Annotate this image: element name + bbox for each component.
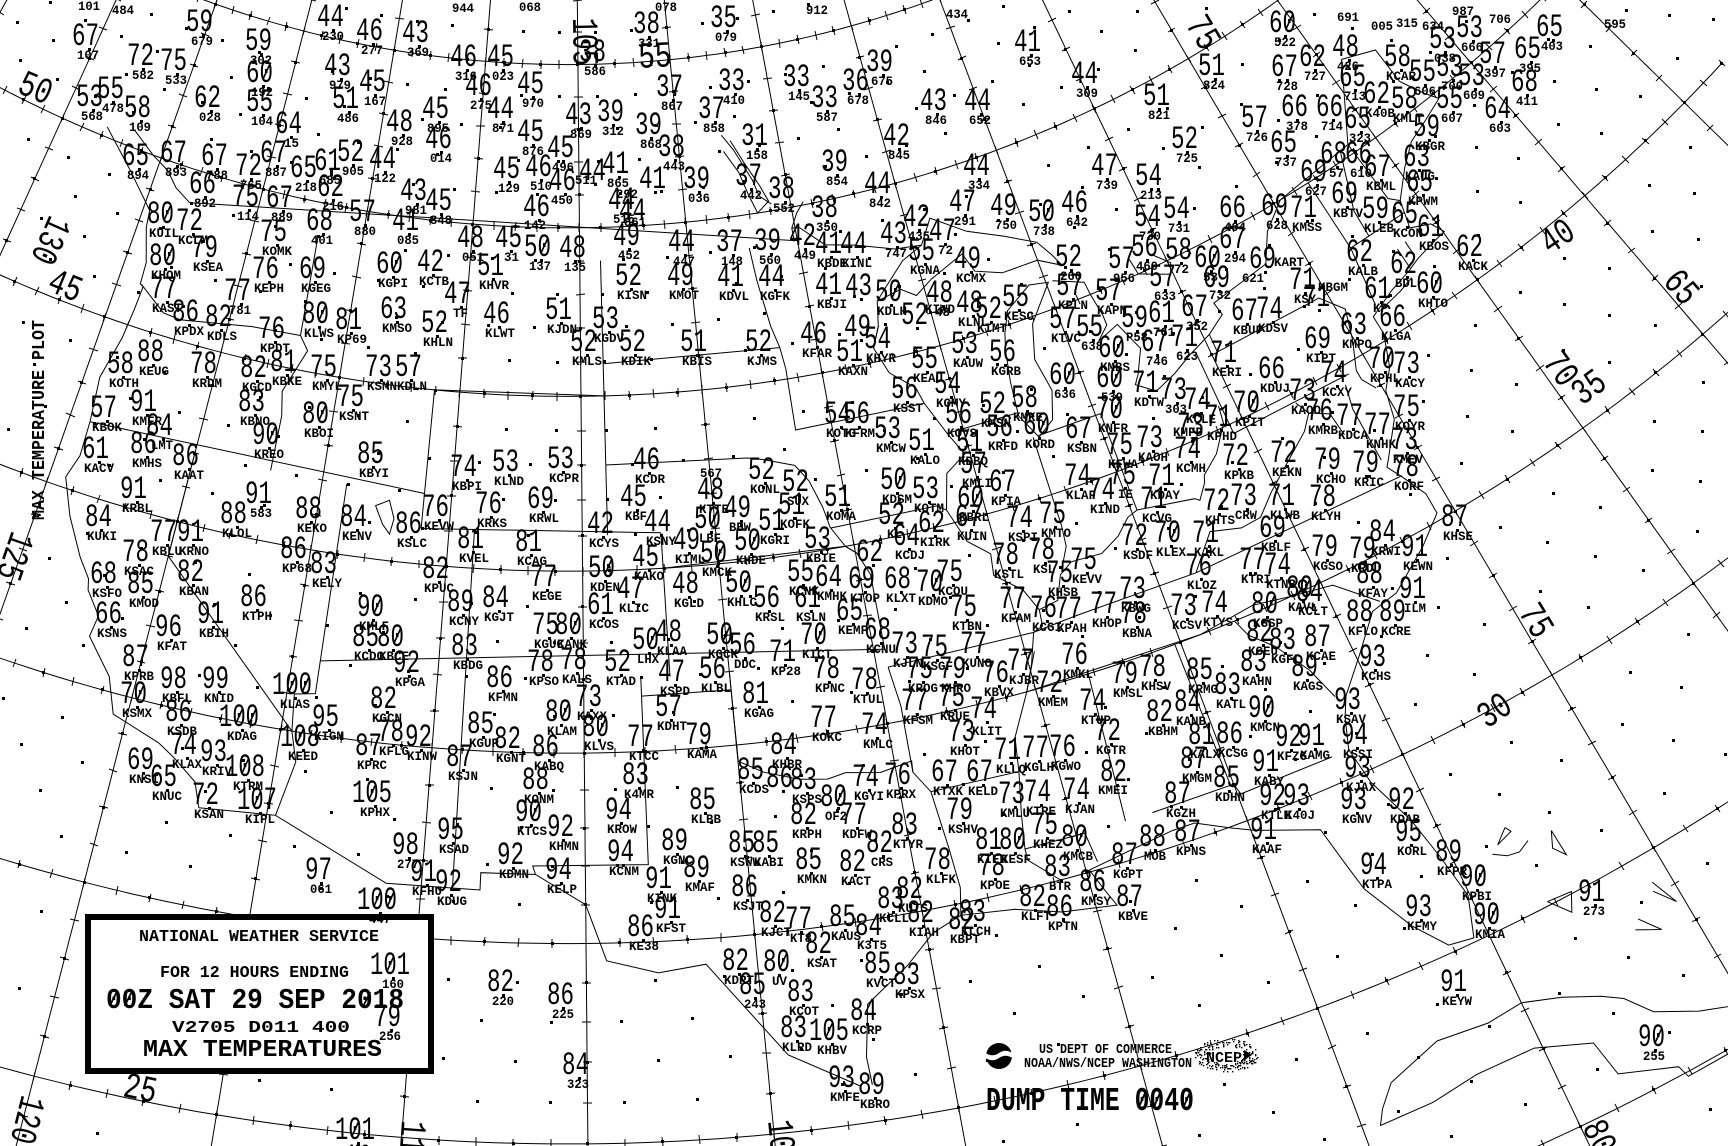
svg-text:114: 114 [237,210,259,224]
svg-text:KHVR: KHVR [479,279,509,293]
svg-text:KHTO: KHTO [1418,297,1448,311]
svg-text:595: 595 [1604,18,1626,32]
svg-text:781: 781 [229,304,251,318]
svg-text:434: 434 [946,8,968,22]
svg-text:KPTN: KPTN [1048,920,1078,934]
svg-text:MAX TEMPERATURES: MAX TEMPERATURES [143,1037,382,1064]
svg-text:478: 478 [102,102,124,116]
svg-text:KBOS: KBOS [1419,240,1449,254]
svg-text:KRDM: KRDM [192,377,222,391]
svg-text:IE: IE [1118,488,1133,502]
svg-text:005: 005 [1371,20,1393,34]
svg-text:586: 586 [584,65,606,79]
svg-text:KPAH: KPAH [1057,622,1087,636]
svg-text:KMEM: KMEM [1038,696,1068,710]
svg-text:KESF: KESF [1001,853,1031,867]
svg-text:449: 449 [794,249,816,263]
svg-text:KTRE: KTRE [1026,805,1056,819]
svg-text:KOKC: KOKC [812,731,842,745]
svg-text:KMLC: KMLC [863,738,893,752]
svg-text:628: 628 [1266,219,1288,233]
svg-text:634: 634 [1422,20,1444,34]
svg-text:KVEL: KVEL [459,552,489,566]
svg-text:315: 315 [1396,17,1418,31]
svg-text:00Z SAT 29 SEP 2018: 00Z SAT 29 SEP 2018 [106,984,404,1017]
svg-text:079: 079 [715,31,737,45]
svg-text:KMFD: KMFD [1173,426,1203,440]
svg-text:KFAT: KFAT [157,640,187,654]
svg-text:KRPH: KRPH [792,828,822,842]
svg-text:KBIS: KBIS [682,355,712,369]
svg-text:KCRE: KCRE [1381,625,1411,639]
svg-text:K40J: K40J [1285,809,1315,823]
svg-text:036: 036 [688,192,710,206]
svg-text:230: 230 [322,30,344,44]
svg-text:880: 880 [354,225,376,239]
svg-text:867: 867 [661,100,683,114]
svg-text:NATIONAL WEATHER SERVICE: NATIONAL WEATHER SERVICE [139,928,379,947]
svg-text:014: 014 [430,152,452,166]
svg-text:893: 893 [165,166,187,180]
svg-text:KBTV: KBTV [1333,207,1363,221]
svg-text:NCEP: NCEP [1206,1050,1242,1067]
svg-text:KHBV: KHBV [817,1044,847,1058]
svg-text:627: 627 [1305,185,1327,199]
svg-text:KMSL: KMSL [1113,687,1143,701]
svg-text:292: 292 [616,188,638,202]
svg-text:KSDF: KSDF [1123,549,1153,563]
svg-text:KPSO: KPSO [529,675,559,689]
svg-text:KVCT: KVCT [866,977,896,991]
svg-text:KORF: KORF [1394,480,1424,494]
svg-text:KAGS: KAGS [1293,680,1323,694]
svg-text:KISN: KISN [617,289,647,303]
svg-text:KEUG: KEUG [139,365,169,379]
svg-text:KIPL: KIPL [245,813,275,827]
svg-text:511: 511 [575,174,597,188]
svg-text:KGRI: KGRI [760,534,790,548]
svg-text:256: 256 [379,1030,401,1044]
svg-text:KEGE: KEGE [532,590,562,604]
svg-text:KFRM: KFRM [845,427,875,441]
svg-text:727: 727 [1304,70,1326,84]
svg-text:KGRB: KGRB [991,365,1021,379]
svg-text:KGPI: KGPI [378,277,408,291]
svg-text:62: 62 [856,534,883,571]
svg-text:KLWT: KLWT [485,327,515,341]
svg-text:738: 738 [1033,225,1055,239]
svg-text:KLXT: KLXT [886,592,916,606]
svg-text:KAAT: KAAT [174,469,204,483]
svg-text:KHSE: KHSE [1443,530,1473,544]
svg-text:KMSY: KMSY [1081,895,1111,909]
svg-text:KPHX: KPHX [360,806,390,820]
svg-text:KGZH: KGZH [1166,807,1196,821]
svg-text:KORL: KORL [1397,845,1427,859]
svg-text:31: 31 [504,251,519,265]
svg-text:078: 078 [655,1,677,15]
svg-text:894: 894 [127,169,149,183]
svg-text:KLYH: KLYH [1311,510,1341,524]
svg-text:BDL: BDL [1395,277,1417,291]
svg-text:KSJN: KSJN [448,770,478,784]
svg-text:KMKL: KMKL [1063,668,1093,682]
svg-text:KFLO: KFLO [1348,625,1378,639]
svg-text:KLCH: KLCH [961,925,991,939]
svg-text:KBDG: KBDG [453,659,483,673]
svg-text:KATL: KATL [1216,698,1246,712]
svg-text:KLEX: KLEX [1156,546,1186,560]
svg-text:KELY: KELY [312,577,342,591]
svg-text:KLBL: KLBL [701,682,731,696]
svg-text:568: 568 [81,110,103,124]
svg-text:KCSV: KCSV [1172,619,1202,633]
svg-text:603: 603 [1489,122,1511,136]
svg-text:652: 652 [969,114,991,128]
svg-text:137: 137 [529,260,551,274]
svg-text:KEWN: KEWN [1403,560,1433,574]
svg-text:714: 714 [1321,120,1343,134]
svg-text:KGLD: KGLD [674,597,704,611]
svg-text:KELP: KELP [547,883,577,897]
svg-text:KACK: KACK [1458,260,1488,274]
svg-text:72: 72 [1174,263,1189,277]
svg-text:ILM: ILM [1404,602,1426,616]
svg-text:110: 110 [387,1119,432,1146]
svg-text:CRS: CRS [871,856,893,870]
svg-text:609: 609 [1463,89,1485,103]
svg-text:DUMP TIME 0040: DUMP TIME 0040 [986,1083,1194,1120]
svg-text:220: 220 [492,995,514,1009]
svg-text:KP28: KP28 [771,665,801,679]
svg-text:824: 824 [1203,79,1225,93]
svg-text:KPNS: KPNS [1176,845,1206,859]
svg-text:KGWO: KGWO [1051,760,1081,774]
svg-text:731: 731 [1168,222,1190,236]
svg-text:871: 871 [492,122,514,136]
svg-text:KEVW: KEVW [424,520,454,534]
svg-text:KLBB: KLBB [691,813,721,827]
svg-text:KDAG: KDAG [227,730,257,744]
svg-text:KBYI: KBYI [359,467,389,481]
svg-text:KART: KART [1274,256,1304,270]
svg-text:KOMA: KOMA [826,510,856,524]
svg-text:KSNT: KSNT [339,410,369,424]
svg-text:KEED: KEED [288,750,318,764]
svg-text:KSHV: KSHV [948,823,978,837]
svg-text:636: 636 [1054,388,1076,402]
svg-text:KCNM: KCNM [609,865,639,879]
svg-text:KBNA: KBNA [1122,627,1152,641]
svg-text:KHSV: KHSV [1141,680,1171,694]
svg-text:KEVV: KEVV [1072,573,1102,587]
svg-text:679: 679 [191,35,213,49]
svg-text:401: 401 [311,234,333,248]
svg-text:061: 061 [310,883,332,897]
svg-text:KDMN: KDMN [499,868,529,882]
svg-text:KGAG: KGAG [744,707,774,721]
svg-text:KLWS: KLWS [304,327,334,341]
svg-text:KMOT: KMOT [669,289,699,303]
svg-text:KMSO: KMSO [382,322,412,336]
svg-text:KTUL: KTUL [853,693,883,707]
svg-text:KJMS: KJMS [747,355,777,369]
svg-text:KMKN: KMKN [797,873,827,887]
svg-text:KHTS: KHTS [1205,514,1235,528]
svg-text:854: 854 [826,175,848,189]
svg-text:KPRC: KPRC [357,759,387,773]
svg-text:KHLN: KHLN [423,336,453,350]
svg-text:100: 100 [756,1118,803,1146]
svg-text:KUIN: KUIN [957,530,987,544]
svg-text:KCDS: KCDS [739,783,769,797]
svg-text:621: 621 [1242,272,1264,286]
svg-text:KBGM: KBGM [1318,281,1348,295]
svg-text:486: 486 [337,112,359,126]
svg-text:KDHT: KDHT [657,720,687,734]
svg-text:KLRD: KLRD [782,1041,812,1055]
svg-text:KSBN: KSBN [1067,442,1097,456]
svg-text:NOAA/NWS/NCEP WASHINGTON: NOAA/NWS/NCEP WASHINGTON [1024,1057,1192,1072]
svg-text:706: 706 [1489,13,1511,27]
svg-text:KBWG: KBWG [1121,602,1151,616]
svg-text:KICT: KICT [802,648,832,662]
svg-text:KCLL: KCLL [879,912,909,926]
svg-text:068: 068 [519,1,541,15]
svg-text:167: 167 [364,95,386,109]
svg-text:KPRX: KPRX [886,788,916,802]
svg-text:KBF: KBF [625,510,647,524]
svg-text:KCDR: KCDR [635,473,665,487]
svg-text:905: 905 [342,165,364,179]
svg-text:583: 583 [250,507,272,521]
svg-text:US DEPT OF COMMERCE: US DEPT OF COMMERCE [1039,1043,1172,1058]
svg-text:845: 845 [888,149,910,163]
svg-text:KPIT: KPIT [1235,416,1265,430]
svg-text:944: 944 [452,2,474,16]
svg-text:KMEI: KMEI [1098,784,1128,798]
svg-text:KLVS: KLVS [584,740,614,754]
svg-text:726: 726 [1246,131,1268,145]
svg-text:243: 243 [744,998,766,1012]
svg-text:KFMN: KFMN [488,691,518,705]
svg-text:KTYS: KTYS [1203,616,1233,630]
svg-text:KPOE: KPOE [980,879,1010,893]
svg-text:K4MR: K4MR [624,788,654,802]
svg-text:KSMN: KSMN [367,380,397,394]
svg-text:KRIC: KRIC [1354,476,1384,490]
svg-text:107: 107 [77,49,99,63]
svg-text:KFAY: KFAY [1358,587,1388,601]
svg-text:750: 750 [995,219,1017,233]
svg-text:484: 484 [112,4,134,18]
svg-text:848: 848 [430,214,452,228]
svg-text:435: 435 [908,230,930,244]
svg-text:642: 642 [1066,216,1088,230]
svg-text:KCMX: KCMX [956,272,986,286]
svg-text:KAMG: KAMG [1300,749,1330,763]
svg-text:KMSS: KMSS [1292,221,1322,235]
svg-text:410: 410 [723,94,745,108]
svg-text:277: 277 [361,44,383,58]
svg-text:KIND: KIND [1090,503,1120,517]
svg-text:KCSG: KCSG [1218,747,1248,761]
svg-text:DDC: DDC [734,658,756,672]
svg-text:KGYI: KGYI [854,790,884,804]
svg-text:KGNV: KGNV [1342,813,1372,827]
svg-text:623: 623 [1176,350,1198,364]
svg-text:KDUJ: KDUJ [1260,382,1290,396]
svg-text:567: 567 [700,467,722,481]
svg-text:KNUC: KNUC [152,790,182,804]
svg-text:KFSM: KFSM [903,714,933,728]
svg-text:028: 028 [199,111,221,125]
svg-text:KTYR: KTYR [893,838,923,852]
svg-text:582: 582 [132,69,154,83]
svg-text:KHOT: KHOT [950,745,980,759]
svg-text:323: 323 [567,1078,589,1092]
svg-text:KAVL: KAVL [1288,601,1318,615]
svg-text:V2705 D011 400: V2705 D011 400 [172,1019,350,1038]
svg-text:522: 522 [1274,36,1296,50]
svg-text:KBJI: KBJI [817,298,847,312]
svg-text:331: 331 [638,37,660,51]
svg-text:145: 145 [788,90,810,104]
svg-text:KLAS: KLAS [280,698,310,712]
svg-text:675: 675 [871,75,893,89]
svg-text:KLIC: KLIC [619,602,649,616]
svg-text:KEPH: KEPH [254,282,284,296]
svg-text:KCMH: KCMH [1176,462,1206,476]
svg-text:KJBR: KJBR [1009,674,1039,688]
svg-text:KAHN: KAHN [1242,675,1272,689]
svg-text:KOVS: KOVS [947,427,977,441]
svg-text:KPNC: KPNC [815,682,845,696]
svg-text:KINW: KINW [407,750,437,764]
svg-text:KMFE: KMFE [830,1091,860,1105]
svg-text:43: 43 [845,268,872,305]
svg-text:KAXN: KAXN [838,365,868,379]
svg-text:KSAN: KSAN [194,808,224,822]
svg-text:023: 023 [492,70,514,84]
svg-text:KGSO: KGSO [1313,560,1343,574]
svg-text:KREO: KREO [254,448,284,462]
svg-text:122: 122 [374,172,396,186]
svg-text:970: 970 [522,97,544,111]
svg-text:987: 987 [1452,5,1474,19]
svg-text:KDMO: KDMO [918,595,948,609]
svg-text:821: 821 [1148,109,1170,123]
svg-text:KJAN: KJAN [1065,803,1095,817]
svg-text:129: 129 [498,182,520,196]
svg-text:KHYR: KHYR [866,352,896,366]
svg-text:KHSB: KHSB [1048,586,1078,600]
svg-text:725: 725 [1176,152,1198,166]
svg-text:KTPH: KTPH [242,610,272,624]
svg-text:255: 255 [1643,1050,1665,1064]
svg-text:KBHM: KBHM [1148,725,1178,739]
svg-text:868: 868 [640,138,662,152]
svg-text:552: 552 [773,202,795,216]
svg-text:KCRP: KCRP [852,1024,882,1038]
svg-text:160: 160 [382,978,404,992]
svg-text:52: 52 [901,297,928,334]
svg-text:KDSV: KDSV [1258,322,1288,336]
svg-text:KSAT: KSAT [807,957,837,971]
svg-text:KGJT: KGJT [484,611,514,625]
svg-text:KMCW: KMCW [876,442,906,456]
svg-text:846: 846 [925,114,947,128]
svg-text:KDLS: KDLS [207,330,237,344]
svg-text:KBRO: KBRO [860,1098,890,1112]
svg-text:KIRK: KIRK [920,536,950,550]
svg-text:KERI: KERI [1212,366,1242,380]
svg-text:KRBL: KRBL [122,502,152,516]
svg-text:MOB: MOB [1144,850,1166,864]
svg-text:369: 369 [407,46,429,60]
svg-text:KCYS: KCYS [589,537,619,551]
svg-text:FOR 12 HOURS ENDING: FOR 12 HOURS ENDING [160,964,349,983]
svg-text:KDIK: KDIK [621,355,651,369]
svg-text:607: 607 [1441,112,1463,126]
svg-text:CRW: CRW [1235,509,1257,523]
svg-text:KAMA: KAMA [687,748,717,762]
svg-text:KLIT: KLIT [972,725,1002,739]
svg-text:KSLC: KSLC [397,537,427,551]
svg-text:678: 678 [847,94,869,108]
svg-text:739: 739 [1096,179,1118,193]
svg-text:KSEA: KSEA [193,261,223,275]
svg-text:KCNY: KCNY [449,615,479,629]
svg-text:KACT: KACT [841,875,871,889]
svg-text:KMAF: KMAF [685,881,715,895]
svg-text:TF: TF [453,307,468,321]
svg-text:730: 730 [1139,230,1161,244]
svg-text:KSTL: KSTL [994,568,1024,582]
svg-text:UV: UV [772,975,787,989]
svg-text:218: 218 [295,181,317,195]
svg-text:KONL: KONL [750,483,780,497]
svg-text:KFAR: KFAR [802,347,832,361]
svg-text:104: 104 [251,115,273,129]
svg-text:KTAD: KTAD [606,675,636,689]
svg-text:KRSL: KRSL [755,611,785,625]
svg-text:KAAF: KAAF [1252,843,1282,857]
svg-text:KCHS: KCHS [1361,670,1391,684]
svg-text:KPGA: KPGA [395,676,425,690]
svg-text:861: 861 [624,216,646,230]
svg-text:KGEG: KGEG [301,282,331,296]
svg-text:109: 109 [129,121,151,135]
svg-text:KTPA: KTPA [1362,878,1392,892]
svg-text:403: 403 [1541,40,1563,54]
svg-text:KUKI: KUKI [87,530,117,544]
svg-text:KHOP: KHOP [1092,617,1122,631]
svg-text:KFMY: KFMY [1407,920,1437,934]
svg-text:397: 397 [1484,67,1506,81]
svg-text:KLFK: KLFK [926,873,956,887]
svg-text:KDVL: KDVL [719,290,749,304]
svg-text:KFAM: KFAM [1001,612,1031,626]
svg-text:213: 213 [1140,189,1162,203]
svg-text:KP68: KP68 [282,562,312,576]
svg-text:KCOS: KCOS [589,618,619,632]
svg-text:KEYW: KEYW [1442,995,1472,1009]
svg-text:KMLS: KMLS [572,355,602,369]
svg-text:KSMX: KSMX [122,707,152,721]
svg-text:858: 858 [703,122,725,136]
svg-text:533: 533 [165,74,187,88]
